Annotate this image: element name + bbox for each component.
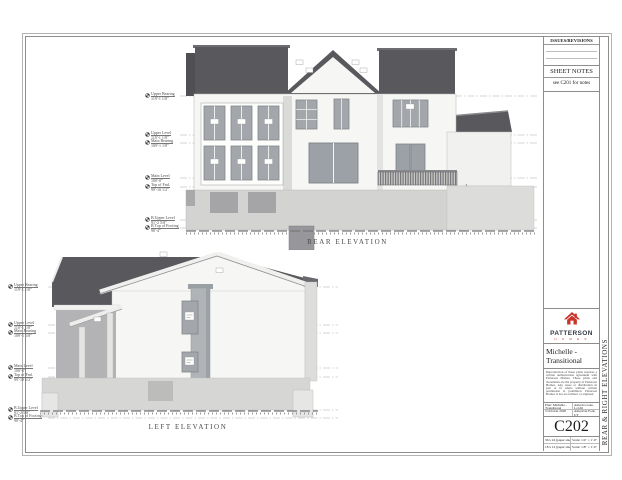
sheet-notes-title: SHEET NOTES — [544, 66, 599, 78]
logo-box: PATTERSON H O M E S — [544, 308, 599, 343]
sheet-title-vertical: REAR & RIGHT ELEVATIONS — [601, 339, 609, 445]
issues-row — [546, 45, 597, 52]
datum-icon — [8, 415, 13, 420]
datum-icon — [145, 225, 150, 230]
sheet-title-strip: REAR & RIGHT ELEVATIONS — [599, 36, 609, 451]
elevation-marker: Upper Bearing119'-1 1/8" — [145, 92, 175, 101]
disclaimer-text: Reproduction of these plans requires a w… — [544, 368, 599, 402]
left-porch — [54, 305, 122, 378]
datum-icon — [145, 217, 150, 222]
elevation-marker: Upper Bearing119'-1 1/8" — [8, 283, 38, 292]
datum-icon — [145, 175, 150, 180]
rear-window-wall — [201, 103, 283, 185]
paper-scale-table: 36 x 24 (paper size) Scale: 1/4" = 1'-0"… — [544, 436, 599, 451]
left-foundation — [40, 378, 318, 417]
patterson-house-icon — [563, 312, 581, 325]
plan-title: Michelle - Transitional — [544, 343, 599, 368]
datum-icon — [145, 93, 150, 98]
issues-revisions-title: ISSUES/REVISIONS — [544, 36, 599, 45]
datum-icon — [8, 407, 13, 412]
drawing-sheet: REAR ELEVATION LEFT ELEVATION Upper Bear… — [0, 0, 622, 480]
datum-icon — [8, 330, 13, 335]
datum-icon — [145, 140, 150, 145]
datum-icon — [8, 322, 13, 327]
sheet-number: C202 — [544, 416, 599, 436]
left-elevation-label: LEFT ELEVATION — [130, 423, 246, 431]
title-block: ISSUES/REVISIONS SHEET NOTES see C201 fo… — [543, 36, 609, 451]
elevation-marker: B.Top of Footing90'-4" — [145, 224, 179, 233]
sheet-notes-box: SHEET NOTES see C201 for notes — [544, 66, 599, 92]
rear-elevation-drawing — [148, 38, 540, 250]
datum-icon — [8, 374, 13, 379]
datum-icon — [8, 284, 13, 289]
elevation-marker: Main Bearing109'-1 1/8" — [145, 139, 173, 148]
elevation-marker: Main Bearing109'-1 1/8" — [8, 329, 36, 338]
paper-scale: Scale: 1/4" = 1'-0" — [571, 437, 599, 444]
rear-elevation-label: REAR ELEVATION — [290, 238, 405, 246]
issues-row — [546, 59, 597, 65]
logo-wordmark: PATTERSON — [546, 330, 597, 337]
left-elevation-drawing — [26, 246, 342, 426]
issues-row — [546, 52, 597, 59]
paper-scale: Scale: 1/8" = 1'-0" — [571, 444, 599, 451]
paper-size: 18 x 12 (paper size) — [544, 444, 571, 451]
title-block-main: ISSUES/REVISIONS SHEET NOTES see C201 fo… — [544, 36, 599, 451]
plan-info-table: Plan: Michelle - Transitional America Ga… — [544, 402, 599, 416]
title-block-spacer — [544, 92, 599, 308]
issues-revisions-box: ISSUES/REVISIONS — [544, 36, 599, 66]
elevation-marker: Top of Fnd.99'-10 1/2" — [145, 183, 170, 192]
logo-subtext: H O M E S — [546, 337, 597, 341]
sheet-notes-text: see C201 for notes — [544, 78, 599, 91]
elevation-marker: B.Top of Footing90'-4" — [8, 414, 42, 423]
elevation-marker: Top of Fnd.99'-10 1/2" — [8, 373, 33, 382]
datum-icon — [145, 132, 150, 137]
datum-icon — [145, 184, 150, 189]
datum-icon — [8, 365, 13, 370]
paper-size: 36 x 24 (paper size) — [544, 437, 571, 444]
